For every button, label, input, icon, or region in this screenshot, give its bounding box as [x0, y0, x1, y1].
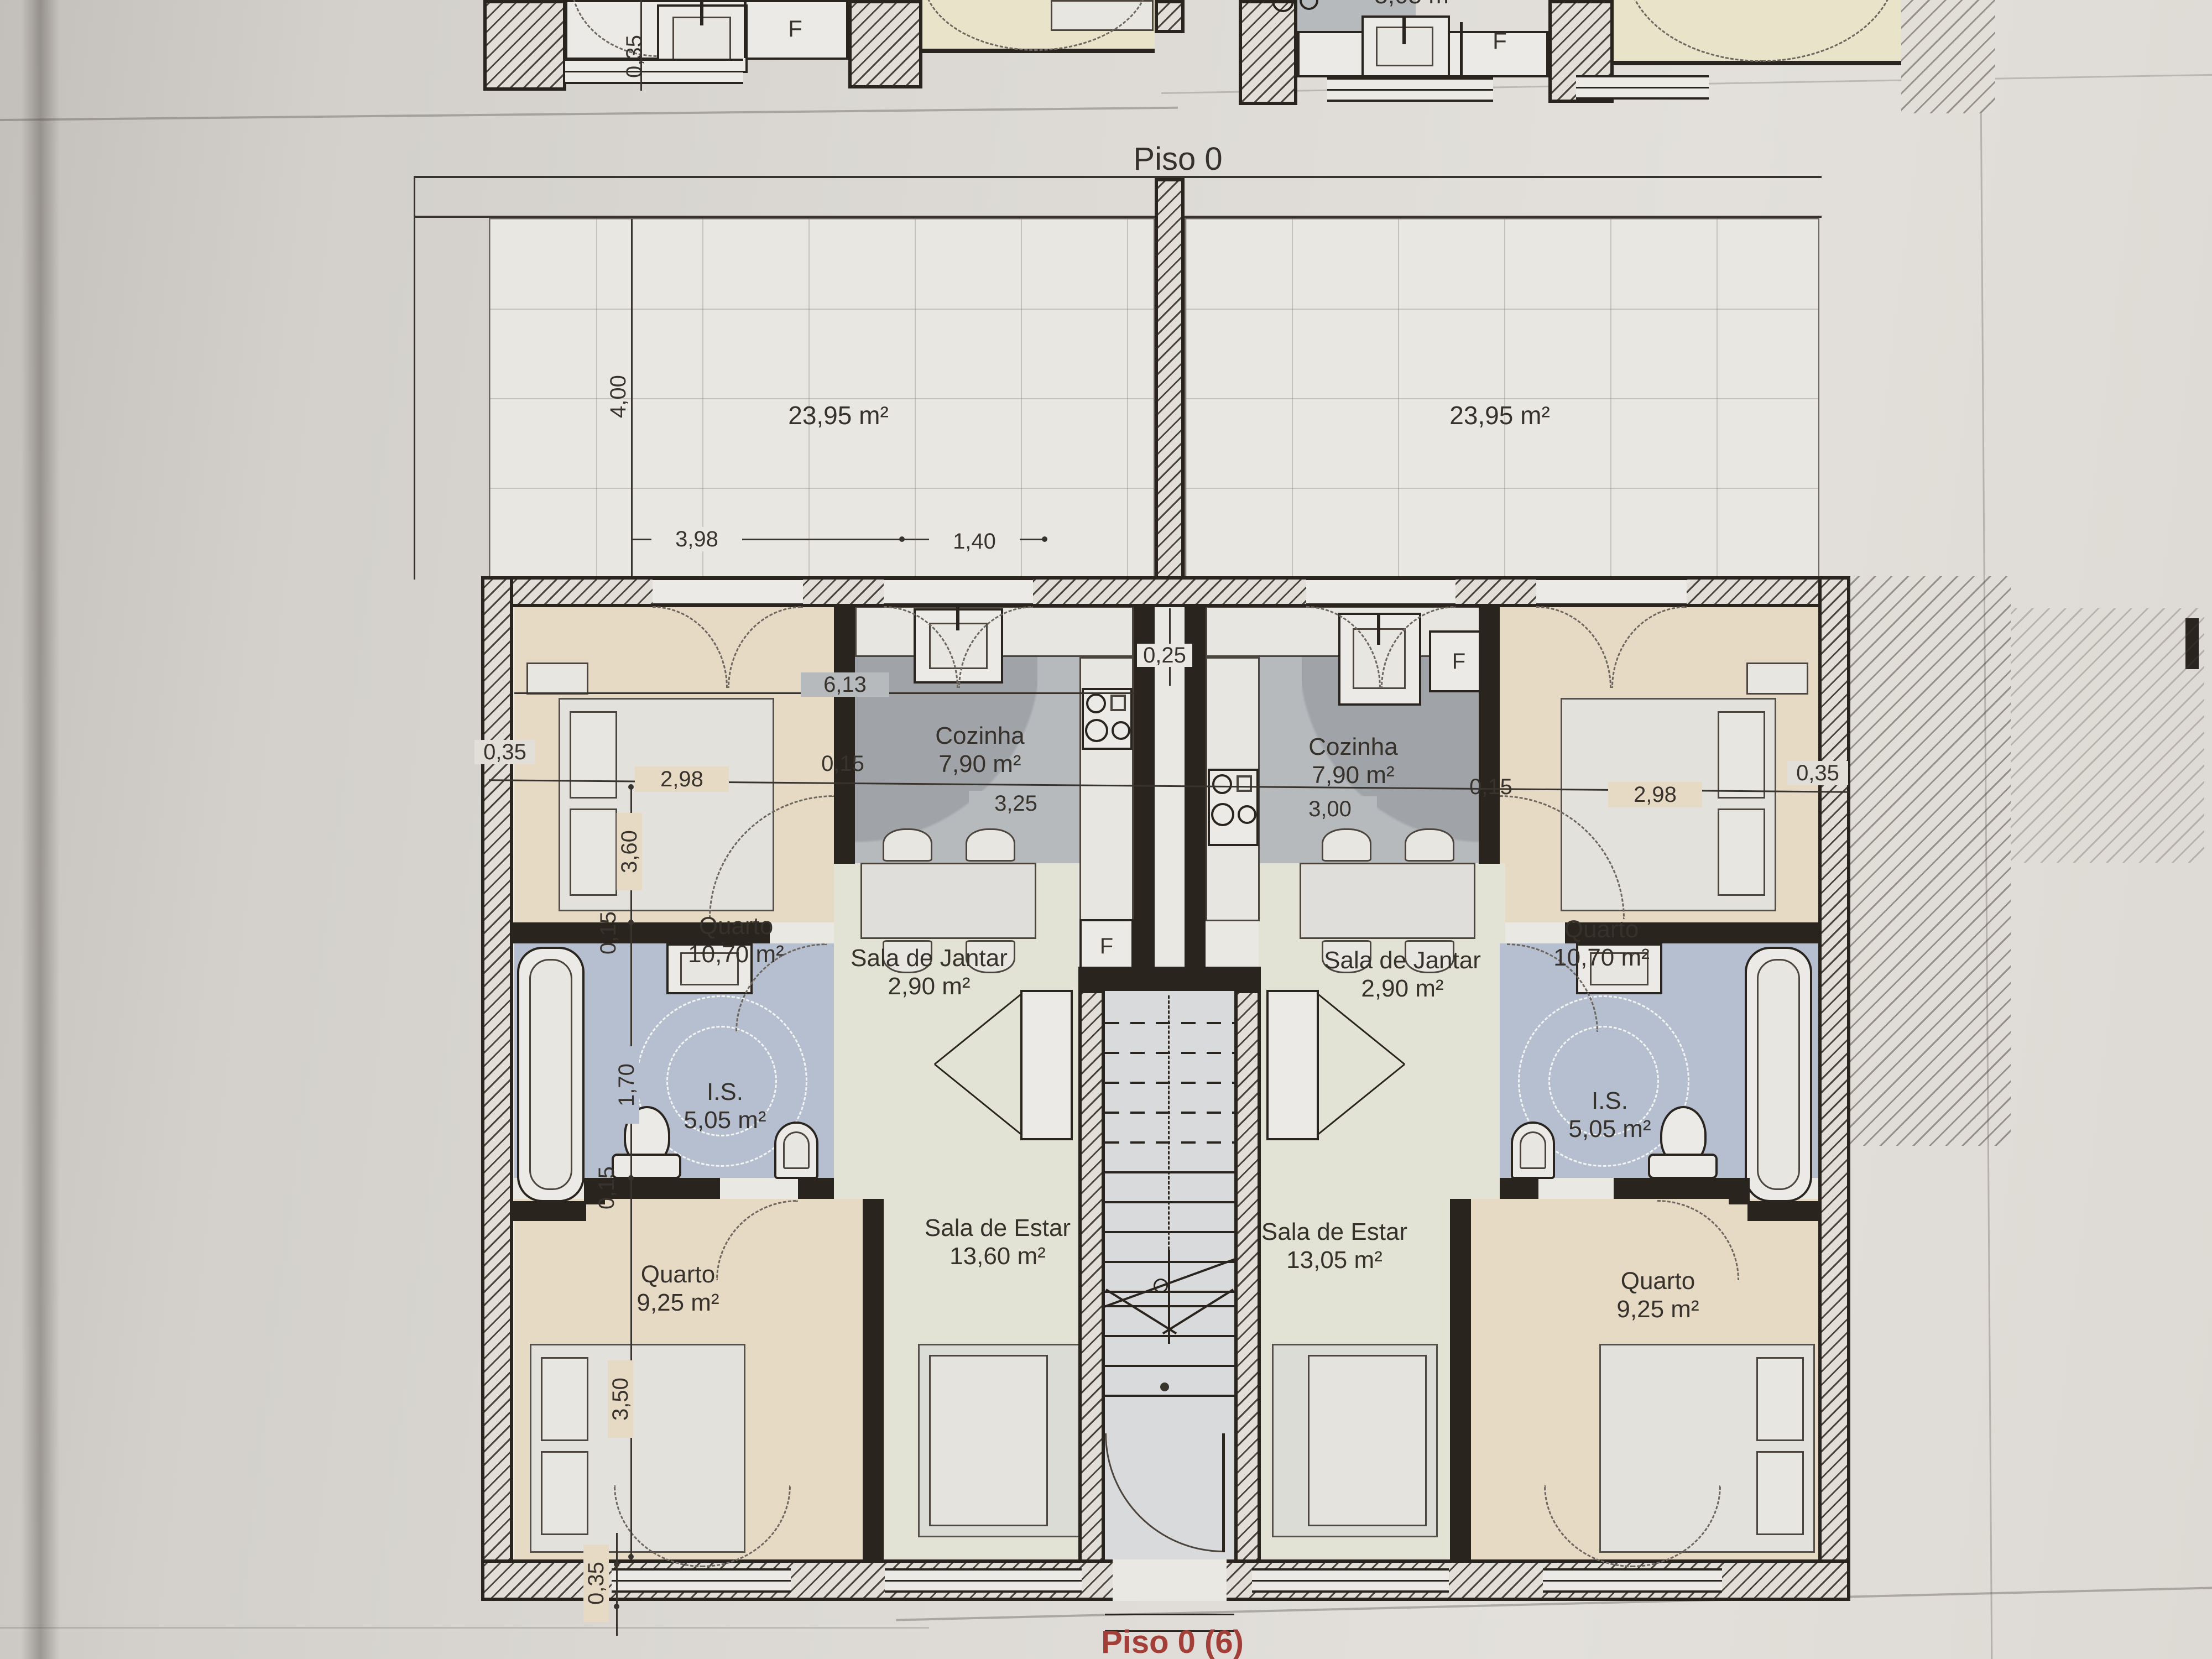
- strip-wall-center: [1155, 0, 1185, 33]
- stair-wall-left: [1078, 990, 1105, 1601]
- footer-title: Piso 0 (6): [1045, 1624, 1300, 1659]
- label-is-left: I.S.5,05 m²: [614, 1078, 836, 1134]
- dim-dot: [614, 1562, 619, 1567]
- dim-dot: [899, 536, 905, 542]
- dim-015-b: 0,15: [1463, 775, 1519, 799]
- strip-partition-2: [1460, 22, 1463, 77]
- entry-axis-dot: [1160, 1383, 1169, 1391]
- hob-burner: [1112, 721, 1130, 740]
- dim-quarto2-h: 3,50: [608, 1360, 633, 1438]
- label-quarto2-left: Quarto9,25 m²: [567, 1261, 789, 1317]
- partition: [1729, 1178, 1750, 1204]
- stair-wall-right: [1234, 990, 1261, 1601]
- nightstand: [1746, 662, 1808, 695]
- dim-v-line: [630, 786, 632, 1559]
- terrace-top-line-1: [414, 176, 1822, 178]
- strip-partial-area: 5,05 m²: [1338, 0, 1493, 8]
- paper-fold-bottom-left: [0, 1627, 929, 1629]
- dim-terrace-w1: 3,98: [651, 527, 742, 551]
- terrace-door-quarto1-right: [1536, 578, 1687, 605]
- bathtub-right-inner: [1757, 959, 1800, 1190]
- strip-wall-2: [848, 0, 922, 88]
- dim-quarto1-h: 3,60: [617, 813, 642, 890]
- strip-fridge-label-left: F: [773, 14, 817, 43]
- window-estar-left: [885, 1568, 1082, 1593]
- wall-left: [481, 576, 513, 1601]
- neighbor-hatch-far: [2011, 608, 2204, 863]
- dim-cozinha-right-w: 3,00: [1283, 796, 1377, 822]
- toilet-right-tank: [1648, 1154, 1718, 1179]
- window-quarto2-left: [612, 1568, 791, 1593]
- strip-sink-faucet: [700, 0, 703, 25]
- dim-dot: [1042, 536, 1047, 542]
- toilet-left-tank: [612, 1154, 681, 1179]
- dim-cozinha-left-w: 3,25: [969, 791, 1063, 816]
- sink-faucet: [1377, 613, 1380, 645]
- label-cozinha-right: Cozinha7,90 m²: [1243, 733, 1464, 789]
- entry-step: [1105, 1614, 1234, 1615]
- partition: [834, 576, 855, 864]
- pillow: [1756, 1357, 1804, 1441]
- dim-line-terrace-v: [631, 219, 633, 577]
- dim-015-d: 0,15: [595, 1160, 618, 1215]
- strip-wall-3: [1239, 0, 1297, 105]
- partition: [1450, 1199, 1471, 1559]
- f-letter: F: [788, 17, 802, 40]
- partition: [1134, 576, 1155, 990]
- dim-quarto1-right-w: 2,98: [1608, 782, 1702, 807]
- entry-door-leaf: [1222, 1433, 1225, 1552]
- pillow: [541, 1451, 588, 1535]
- dim-divider: 0,25: [1137, 644, 1192, 667]
- pillow: [1718, 808, 1765, 896]
- floorplan-photo: F 0,35 5,05 m² F Piso 0 23,95 m² 23,95 m…: [0, 0, 2212, 1659]
- dim-terrace-w2: 1,40: [929, 529, 1020, 554]
- label-cozinha-left: Cozinha7,90 m²: [869, 722, 1091, 778]
- label-quarto1-left: Quarto10,70 m²: [625, 912, 847, 968]
- strip-partition: [744, 0, 747, 58]
- dim-dot: [628, 1554, 634, 1559]
- label-jantar-right: Sala de Jantar2,90 m²: [1292, 947, 1513, 1003]
- label-jantar-left: Sala de Jantar2,90 m²: [818, 945, 1040, 1000]
- nightstand: [526, 662, 588, 695]
- hob-burner: [1211, 803, 1234, 826]
- stairs-dashed-flight: [1105, 1022, 1234, 1144]
- dim-dot: [628, 784, 634, 790]
- neighbor-hatch: [1850, 576, 2011, 1146]
- chair: [1405, 828, 1454, 862]
- dim-wall-right: 0,35: [1787, 761, 1848, 785]
- strip-window-right: [1327, 77, 1493, 102]
- dim-015-c: 0,15: [597, 905, 620, 961]
- sheet-title: Piso 0: [1073, 139, 1283, 178]
- stairs-landing-circle: [1154, 1279, 1168, 1293]
- dining-table-right: [1300, 863, 1475, 939]
- pillow: [570, 808, 617, 896]
- dim-wall-bottom: 0,35: [583, 1545, 609, 1622]
- terrace-right: [1185, 218, 1819, 578]
- label-estar-left: Sala de Estar13,60 m²: [887, 1214, 1108, 1270]
- bathtub-left-inner: [529, 959, 572, 1190]
- stair-top-wall: [1078, 967, 1261, 991]
- entry-opening: [1113, 1559, 1227, 1601]
- dining-table-left: [860, 863, 1036, 939]
- strip-window-right2: [1576, 75, 1709, 100]
- pillow: [1718, 711, 1765, 799]
- terrace-door-quarto1-left: [653, 578, 803, 605]
- shaft-window-right: [1266, 990, 1319, 1140]
- dim-quarto1-left-w: 2,98: [635, 766, 729, 792]
- partition: [1185, 576, 1206, 990]
- terrace-left-area: 23,95 m²: [728, 401, 949, 429]
- dim-dot: [628, 1175, 634, 1181]
- partition: [1479, 576, 1500, 864]
- fridge-label-left: F: [1100, 935, 1113, 957]
- shaft-window-left: [1020, 990, 1073, 1140]
- sink-faucet: [956, 606, 959, 630]
- strip-sink-faucet: [1402, 15, 1406, 44]
- dim-unit-width: 6,13: [801, 672, 889, 697]
- window-estar-right: [1252, 1568, 1449, 1593]
- window-quarto2-right: [1543, 1568, 1722, 1593]
- label-is-right: I.S.5,05 m²: [1499, 1087, 1720, 1143]
- paper-fold-top-left: [0, 107, 1178, 122]
- dim-wall-left: 0,35: [474, 740, 535, 764]
- terrace-door-cozinha-right: [1306, 578, 1455, 605]
- pillow: [1756, 1451, 1804, 1535]
- chair: [966, 828, 1015, 862]
- strip-window-left: [565, 59, 743, 84]
- dim-dot: [614, 1604, 619, 1609]
- partition: [1500, 1178, 1538, 1199]
- chair: [1322, 828, 1371, 862]
- label-quarto1-right: Quarto10,70 m²: [1491, 916, 1712, 972]
- strip-dim-wall: 0,35: [622, 20, 646, 92]
- hob-burner: [1086, 693, 1106, 713]
- chair: [883, 828, 932, 862]
- strip-fridge-label-right: F: [1478, 27, 1522, 55]
- partition: [798, 1178, 834, 1199]
- sofa-left-seat: [929, 1355, 1048, 1526]
- terrace-frame-left: [414, 176, 415, 580]
- dim-015-a: 0,15: [815, 752, 870, 775]
- label-estar-right: Sala de Estar13,05 m²: [1224, 1218, 1445, 1274]
- terrace-door-cozinha-left: [884, 578, 1033, 605]
- sofa-right-seat: [1308, 1355, 1427, 1526]
- terrace-right-area: 23,95 m²: [1389, 401, 1610, 429]
- dim-terrace-height: 4,00: [606, 358, 631, 435]
- fridge-box-left: F: [1079, 919, 1134, 973]
- strip-wall-1: [483, 0, 566, 91]
- hob-burner-sq: [1110, 695, 1126, 711]
- hob-burner: [1238, 805, 1256, 824]
- terrace-left: [489, 218, 1155, 578]
- hob-burner: [1212, 774, 1232, 794]
- left-shadow-band: [21, 0, 60, 1659]
- pillow: [570, 711, 617, 799]
- wall-right: [1818, 576, 1850, 1601]
- stairs-center-guide: [1168, 995, 1170, 1250]
- label-quarto2-right: Quarto9,25 m²: [1547, 1267, 1768, 1323]
- strip-wall-5: [1901, 0, 1995, 113]
- partition: [863, 1199, 884, 1559]
- dim-bottom-line: [616, 1533, 618, 1636]
- pillow: [541, 1357, 588, 1441]
- bidet-left-inner: [783, 1131, 810, 1169]
